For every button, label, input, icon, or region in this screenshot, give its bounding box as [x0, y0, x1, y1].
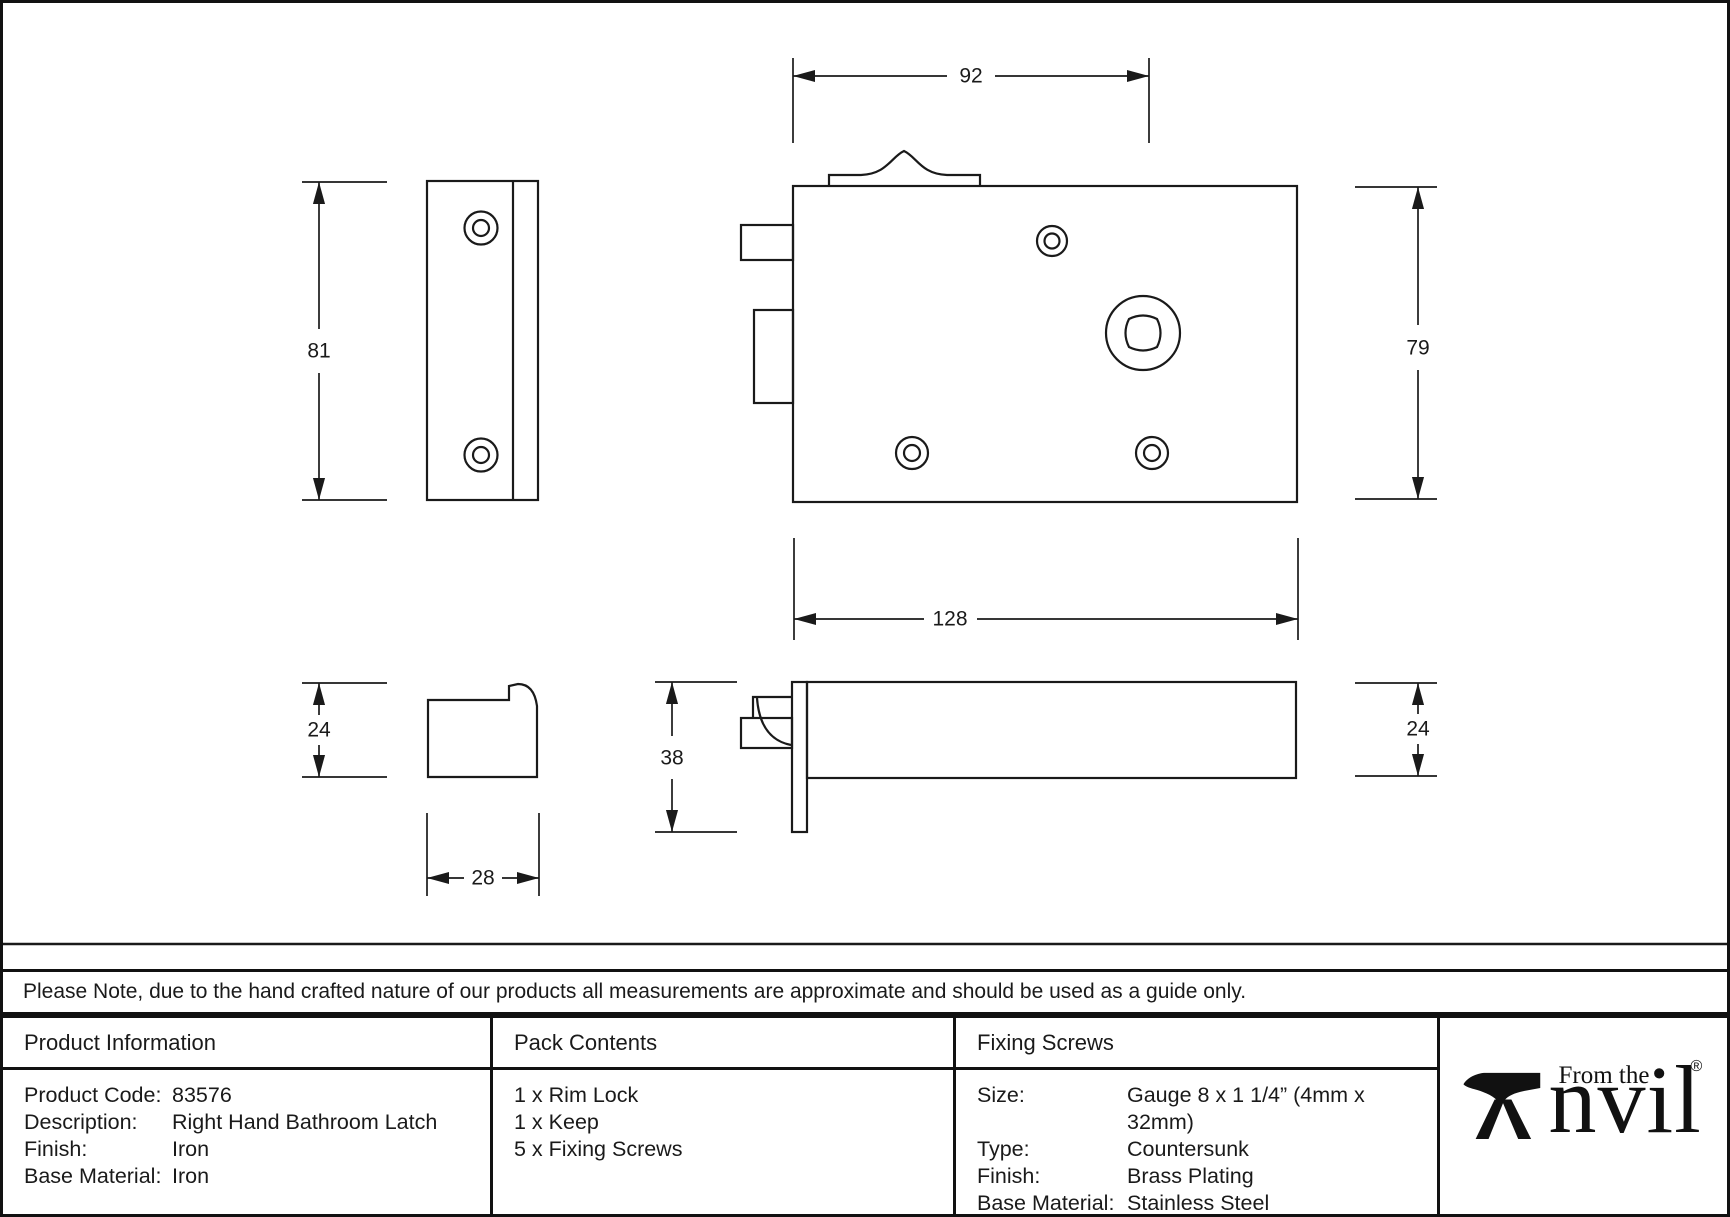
registered-trademark-icon: ®: [1691, 1058, 1703, 1076]
product-information-header: Product Information: [3, 1018, 490, 1070]
pack-item: 1 x Keep: [514, 1109, 932, 1136]
row-value: Stainless Steel: [1127, 1190, 1416, 1217]
dim-keep-height: 81: [307, 340, 330, 363]
row-label: Base Material:: [24, 1163, 172, 1190]
screw-hole: [1037, 226, 1067, 256]
table-row: Finish: Iron: [24, 1136, 469, 1163]
row-value: 83576: [172, 1082, 469, 1109]
dim-lock-profile-height: 38: [660, 747, 683, 770]
latch-bolt: [741, 225, 793, 260]
anvil-icon: [1453, 1066, 1553, 1142]
table-row: Product Code: 83576: [24, 1082, 469, 1109]
brand-cell: From the nvil ®: [1440, 1018, 1727, 1214]
dim-keep-profile-width: 28: [471, 867, 494, 890]
from-the-anvil-logo: From the nvil ®: [1453, 1066, 1715, 1148]
row-label: Base Material:: [977, 1190, 1127, 1217]
main-bolt: [754, 310, 793, 403]
dimension-labels: 92 81 79 128 24 28 38 24: [307, 65, 1430, 890]
spindle-hole: [1126, 316, 1161, 351]
product-spec-sheet: 92 81 79 128 24 28 38 24 Please Note, du…: [0, 0, 1730, 1217]
row-label: Finish:: [24, 1136, 172, 1163]
spec-table: Product Information Product Code: 83576 …: [3, 1015, 1727, 1214]
fixing-screws-header: Fixing Screws: [956, 1018, 1437, 1070]
product-information-column: Product Information Product Code: 83576 …: [3, 1018, 493, 1214]
technical-drawing: 92 81 79 128 24 28 38 24: [3, 3, 1730, 948]
row-label: Size:: [977, 1082, 1127, 1136]
table-row: Description: Right Hand Bathroom Latch: [24, 1109, 469, 1136]
row-label: Product Code:: [24, 1082, 172, 1109]
row-value: Countersunk: [1127, 1136, 1416, 1163]
lock-case: [807, 682, 1296, 778]
spindle-boss: [1106, 296, 1180, 370]
table-row: Base Material: Stainless Steel: [977, 1190, 1416, 1217]
faceplate: [792, 682, 807, 832]
dim-body-width: 128: [932, 608, 967, 631]
keep-front-view: [427, 181, 538, 500]
dim-lock-profile-thickness: 24: [1406, 718, 1430, 741]
row-value: Iron: [172, 1163, 469, 1190]
dim-body-height: 79: [1406, 337, 1429, 360]
keep-profile-view: [428, 684, 537, 777]
row-value: Gauge 8 x 1 1/4” (4mm x 32mm): [1127, 1082, 1416, 1136]
pack-item: 1 x Rim Lock: [514, 1082, 932, 1109]
table-row: Size: Gauge 8 x 1 1/4” (4mm x 32mm): [977, 1082, 1416, 1136]
note-text: Please Note, due to the hand crafted nat…: [23, 980, 1246, 1004]
screw-hole: [465, 439, 498, 472]
row-label: Description:: [24, 1109, 172, 1136]
row-value: Iron: [172, 1136, 469, 1163]
row-value: Right Hand Bathroom Latch: [172, 1109, 469, 1136]
pack-item: 5 x Fixing Screws: [514, 1136, 932, 1163]
screw-hole: [465, 212, 498, 245]
screw-hole: [896, 437, 928, 469]
measurement-note: Please Note, due to the hand crafted nat…: [3, 969, 1727, 1015]
pack-contents-column: Pack Contents 1 x Rim Lock 1 x Keep 5 x …: [493, 1018, 956, 1214]
screw-hole: [1136, 437, 1168, 469]
logo-brand-text: nvil: [1549, 1052, 1702, 1148]
fixing-screws-column: Fixing Screws Size: Gauge 8 x 1 1/4” (4m…: [956, 1018, 1440, 1214]
pack-contents-header: Pack Contents: [493, 1018, 953, 1070]
dim-keep-profile-height: 24: [307, 719, 331, 742]
lock-front-view: [741, 151, 1297, 502]
row-label: Type:: [977, 1136, 1127, 1163]
snib-cap: [829, 151, 980, 186]
table-row: Type: Countersunk: [977, 1136, 1416, 1163]
table-row: Finish: Brass Plating: [977, 1163, 1416, 1190]
row-label: Finish:: [977, 1163, 1127, 1190]
lock-profile-view: [741, 682, 1296, 832]
row-value: Brass Plating: [1127, 1163, 1416, 1190]
dim-top-width: 92: [959, 65, 982, 88]
table-row: Base Material: Iron: [24, 1163, 469, 1190]
